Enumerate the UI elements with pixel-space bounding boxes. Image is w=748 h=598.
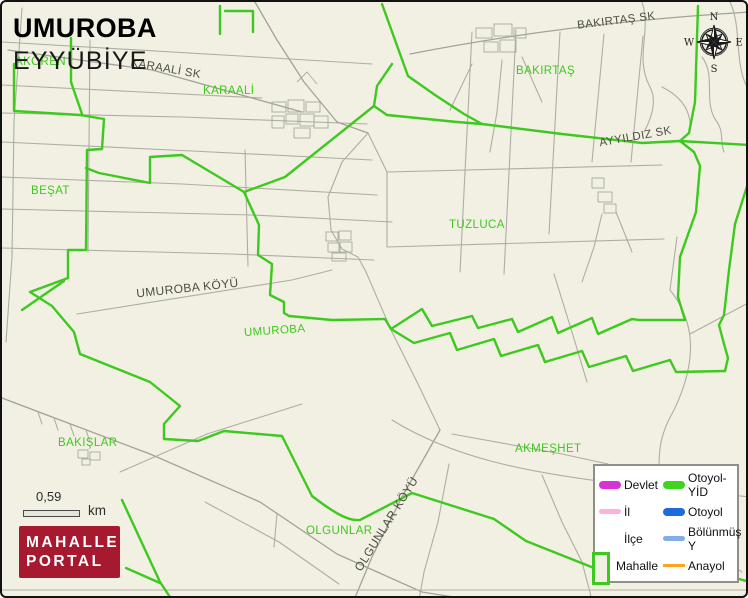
legend-label-il: İl: [624, 505, 630, 519]
compass-north-label: N: [710, 12, 719, 23]
legend-swatch-anayol: [663, 564, 685, 567]
legend-item-il: İl: [599, 505, 663, 519]
legend-item-otoyol-yid: Otoyol-YİD: [663, 471, 741, 499]
map-window: N E S W AKÖREN KARAALİ SK KARAALİ BAKIRT…: [0, 0, 748, 598]
mahalle-portal-logo[interactable]: MAHALLE PORTAL: [19, 526, 120, 578]
map-label-besat: BEŞAT: [31, 186, 70, 198]
legend-swatch-mahalle: [592, 552, 610, 585]
legend-label-anayol: Anayol: [688, 559, 725, 573]
map-label-tuzluca: TUZLUCA: [449, 220, 505, 232]
legend-item-otoyol: Otoyol: [663, 505, 741, 519]
legend-swatch-otoyol-yid: [663, 481, 685, 489]
legend-swatch-bolunmus: [663, 536, 685, 541]
map-label-bakislar: BAKIŞLAR: [58, 438, 117, 450]
legend-swatch-devlet: [599, 481, 621, 489]
legend-label-otoyol-yid: Otoyol-YİD: [688, 471, 741, 499]
scale-distance: 0,59: [36, 489, 61, 504]
legend-item-ilce: İlçe: [599, 532, 663, 546]
logo-line1: MAHALLE: [26, 533, 120, 552]
map-label-akmeshet: AKMEŞHET: [515, 444, 581, 456]
compass-east-label: E: [735, 38, 742, 49]
legend: Devlet Otoyol-YİD İl Otoyol İlçe Bölünmü…: [593, 464, 739, 583]
map-label-karaali: KARAALİ: [203, 86, 254, 98]
legend-label-bolunmus: Bölünmüş Y: [688, 525, 741, 553]
page-title-district: EYYÜBİYE: [13, 48, 148, 76]
compass-west-label: W: [684, 38, 695, 49]
legend-item-bolunmus: Bölünmüş Y: [663, 525, 741, 553]
logo-line2: PORTAL: [26, 552, 120, 571]
compass-icon: N E S W: [684, 12, 743, 75]
legend-label-devlet: Devlet: [624, 478, 658, 492]
legend-label-ilce: İlçe: [624, 532, 643, 546]
legend-item-devlet: Devlet: [599, 478, 663, 492]
map-label-bakirtas: BAKIRTAŞ: [516, 66, 575, 78]
village-blocks: [78, 24, 616, 465]
scale-bar: [23, 510, 80, 517]
legend-swatch-il: [599, 509, 621, 514]
legend-label-mahalle: Mahalle: [616, 559, 658, 573]
legend-item-anayol: Anayol: [663, 559, 741, 573]
scale-unit: km: [88, 503, 106, 518]
page-title-mahalle: UMUROBA: [13, 14, 157, 44]
legend-swatch-otoyol: [663, 508, 685, 516]
legend-label-otoyol: Otoyol: [688, 505, 723, 519]
compass-south-label: S: [711, 64, 718, 75]
map-label-olgunlar: OLGUNLAR: [306, 526, 372, 538]
legend-swatch-ilce: [599, 535, 621, 543]
